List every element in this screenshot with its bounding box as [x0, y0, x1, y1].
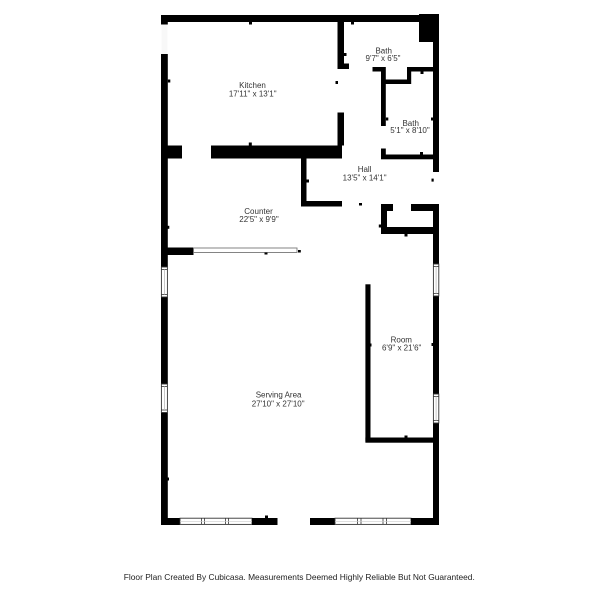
- svg-text:13'5" x 14'1": 13'5" x 14'1": [343, 174, 387, 183]
- svg-text:17'11" x 13'1": 17'11" x 13'1": [229, 89, 277, 98]
- svg-text:22'5" x 9'9": 22'5" x 9'9": [239, 215, 279, 224]
- svg-text:6'9" x 21'6": 6'9" x 21'6": [382, 344, 422, 353]
- svg-text:5'1" x 8'10": 5'1" x 8'10": [390, 126, 430, 135]
- svg-text:Floor Plan Created By Cubicasa: Floor Plan Created By Cubicasa. Measurem…: [124, 572, 475, 582]
- svg-text:Serving Area: Serving Area: [256, 391, 302, 400]
- svg-text:9'7" x 6'5": 9'7" x 6'5": [366, 54, 401, 63]
- svg-text:Hall: Hall: [358, 165, 372, 174]
- svg-text:27'10" x 27'10": 27'10" x 27'10": [252, 399, 305, 408]
